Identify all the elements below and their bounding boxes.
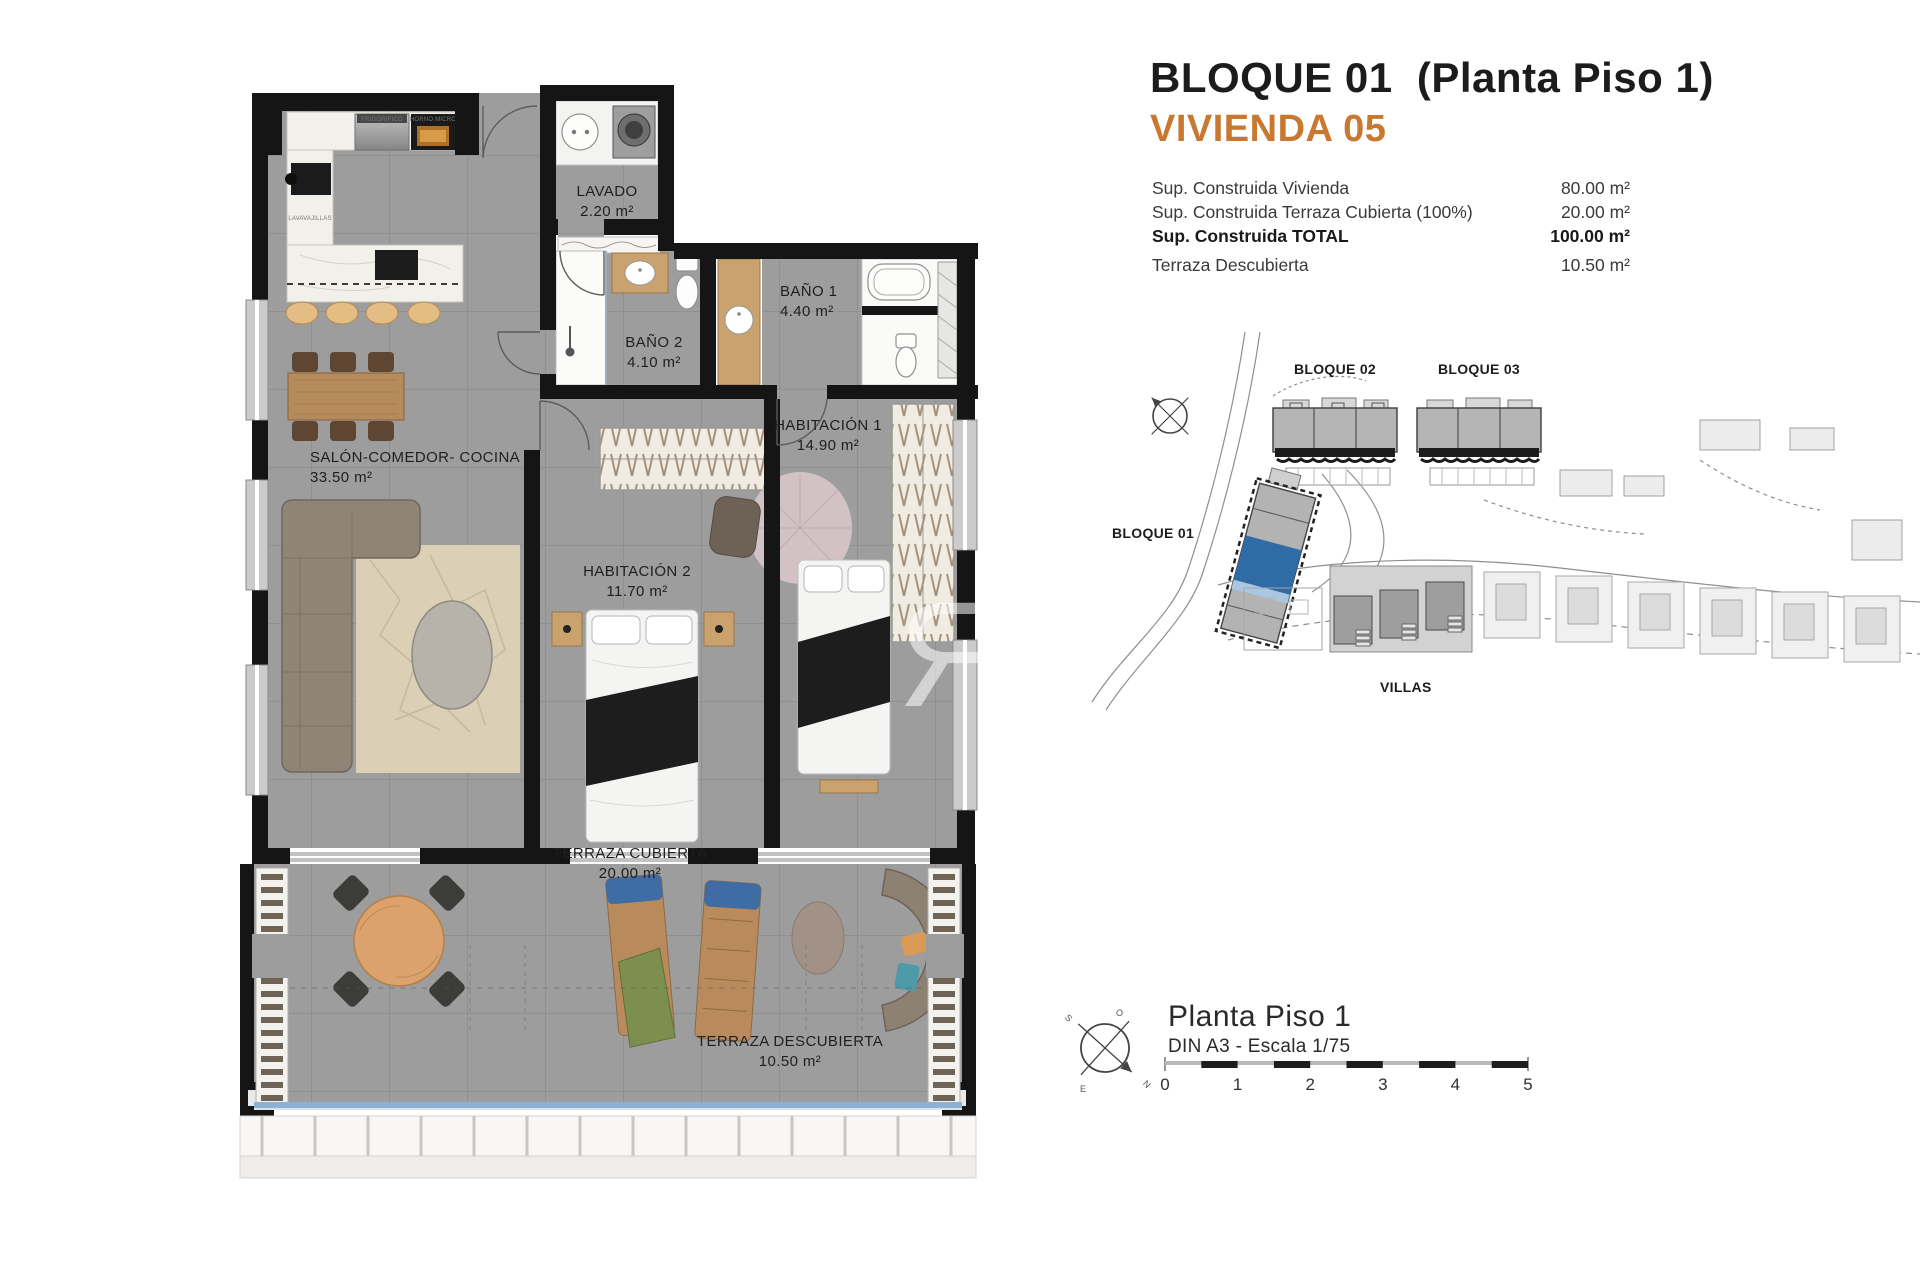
row-value: 10.50 m²	[1561, 253, 1630, 277]
row-label: Sup. Construida Vivienda	[1152, 176, 1349, 200]
row-label: Sup. Construida Terraza Cubierta (100%)	[1152, 200, 1473, 224]
floor-plan: FRIGORIFICO HORNO MICRO LAVAVAJILLAS	[0, 0, 1040, 1280]
row-value: 80.00 m²	[1561, 176, 1630, 200]
scale-tick: 5	[1523, 1075, 1532, 1094]
compass-letter-e: E	[1080, 1084, 1086, 1094]
room-label-salon: SALÓN-COMEDOR- COCINA	[310, 449, 520, 466]
bloque02-building	[1273, 398, 1397, 485]
compass-letter-n: N	[1141, 1078, 1153, 1090]
room-area-bed1: 14.90 m²	[797, 437, 859, 454]
scale-tick: 4	[1451, 1075, 1460, 1094]
north-compass-icon: O N S E	[1060, 997, 1156, 1099]
site-compass-icon	[1133, 379, 1207, 453]
room-area-bath1: 4.40 m²	[780, 303, 834, 320]
site-plan: BLOQUE 02 BLOQUE 03 BLOQUE 01 VILLAS	[1080, 330, 1920, 720]
row-value: 100.00 m²	[1550, 224, 1630, 248]
footer-graphics: O N S E 0 1 2 3 4 5	[1060, 995, 1620, 1155]
scale-tick: 0	[1160, 1075, 1169, 1094]
table-row: Sup. Construida Terraza Cubierta (100%) …	[1152, 200, 1630, 224]
room-label-terraza-cubierta: TERRAZA CUBIERTA	[553, 845, 707, 862]
scale-tick: 1	[1233, 1075, 1242, 1094]
scale-tick: 2	[1305, 1075, 1314, 1094]
bloque02-label: BLOQUE 02	[1294, 361, 1376, 377]
bloque01-label: BLOQUE 01	[1112, 525, 1194, 541]
room-label-bath2: BAÑO 2	[625, 334, 682, 351]
area-summary-table: Sup. Construida Vivienda 80.00 m² Sup. C…	[1152, 176, 1630, 277]
scale-bar: 0 1 2 3 4 5	[1160, 1057, 1532, 1094]
bloque01-building	[1216, 465, 1324, 648]
room-label-bed1: HABITACIÓN 1	[774, 417, 882, 434]
table-row: Sup. Construida Vivienda 80.00 m²	[1152, 176, 1630, 200]
room-label-terraza-descubierta: TERRAZA DESCUBIERTA	[697, 1033, 883, 1050]
room-area-terraza-descubierta: 10.50 m²	[759, 1053, 821, 1070]
watermark: R	[898, 570, 1006, 738]
bloque03-building	[1417, 398, 1541, 485]
room-area-terraza-cubierta: 20.00 m²	[599, 865, 661, 882]
room-area-bath2: 4.10 m²	[627, 354, 681, 371]
compass-letter-s: S	[1063, 1012, 1074, 1023]
oven-label: HORNO MICRO	[410, 117, 456, 123]
row-label: Sup. Construida TOTAL	[1152, 224, 1349, 248]
dining-table	[288, 352, 404, 441]
fridge-label: FRIGORIFICO	[361, 117, 403, 123]
row-label: Terraza Descubierta	[1152, 253, 1309, 277]
unit-title: VIVIENDA 05	[1150, 108, 1386, 151]
villas-label: VILLAS	[1380, 679, 1432, 695]
compass-letter-o: O	[1116, 1008, 1123, 1018]
dishwasher-label: LAVAVAJILLAS	[288, 216, 331, 222]
room-label-bath1: BAÑO 1	[780, 283, 837, 300]
bloque03-label: BLOQUE 03	[1438, 361, 1520, 377]
room-area-bed2: 11.70 m²	[606, 583, 667, 600]
table-row: Terraza Descubierta 10.50 m²	[1152, 253, 1630, 277]
scale-tick: 3	[1378, 1075, 1387, 1094]
room-area-salon: 33.50 m²	[310, 469, 372, 486]
table-row-total: Sup. Construida TOTAL 100.00 m²	[1152, 224, 1630, 248]
room-label-lavado: LAVADO	[576, 183, 637, 200]
page-title: BLOQUE 01 (Planta Piso 1)	[1150, 54, 1714, 102]
room-label-bed2: HABITACIÓN 2	[583, 563, 691, 580]
room-area-lavado: 2.20 m²	[580, 203, 634, 220]
row-value: 20.00 m²	[1561, 200, 1630, 224]
